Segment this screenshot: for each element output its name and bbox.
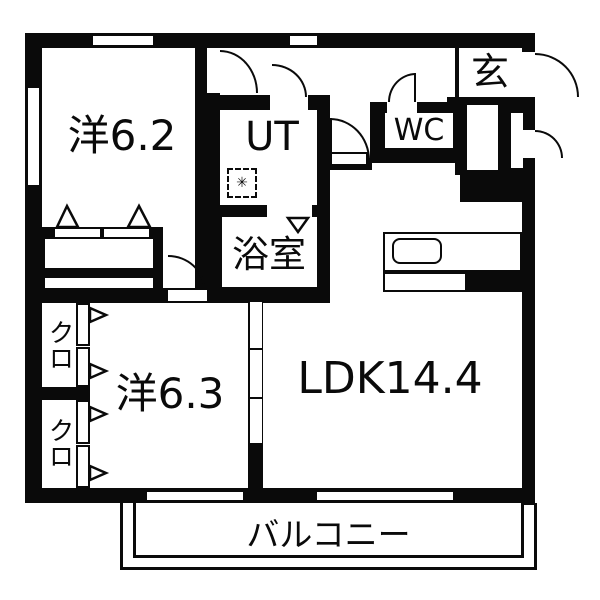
kuro1-panel-top [76, 303, 90, 346]
window-top-2 [290, 36, 317, 45]
closet-shelf-upper [45, 239, 153, 268]
western2-slide-slot-1 [250, 302, 262, 348]
wall-right-mid-a [455, 104, 467, 175]
storage-door-arc [535, 130, 563, 158]
washing-machine-icon: ✳ [227, 168, 257, 198]
ut-door-arc [272, 64, 307, 97]
room-label-bath: 浴室 [221, 236, 317, 275]
ldk-nook [467, 105, 498, 170]
wc-door-gap [387, 102, 417, 113]
closet-panel-left [53, 227, 102, 239]
wall-bottom [25, 488, 535, 503]
room-label-western1: 洋6.2 [60, 114, 184, 158]
western2-slide-slot-3 [250, 399, 262, 443]
wall-right-mid-c [498, 104, 535, 113]
wall-closet-divider [42, 387, 90, 400]
window-left [28, 88, 39, 185]
floorplan: ✳ 洋6.2 UT WC 玄 浴室 洋6.3 LDK14.4 クロ クロ バルコ… [0, 0, 600, 600]
room-label-closet2: クロ [46, 410, 72, 476]
western2-slide-slot-2 [250, 350, 262, 397]
storage-door-leaf [523, 130, 535, 158]
window-bottom-western2 [147, 492, 243, 500]
closet-panel-right [102, 227, 151, 239]
genkan-door-leaf [522, 52, 535, 97]
wc-door-arc [388, 73, 416, 102]
bath-door-gap [267, 205, 312, 217]
closet-fold-triangle-1 [57, 206, 78, 227]
kuro2-panel-bottom [76, 445, 90, 488]
kuro1-fold-triangle-1 [90, 308, 106, 322]
storage-slot [511, 113, 523, 168]
room-label-wc: WC [388, 115, 450, 147]
kitchen-lower-black [465, 272, 522, 292]
room-label-western2: 洋6.3 [108, 372, 232, 416]
closet-fold-triangle-2 [128, 206, 150, 227]
closet-shelf-lower [45, 278, 153, 288]
window-bottom-ldk [317, 492, 453, 500]
room-label-ut: UT [240, 116, 304, 158]
ldk-door-arc [330, 118, 370, 160]
room-label-ldk: LDK14.4 [288, 356, 492, 402]
wall-right-mid-d [460, 168, 535, 202]
kuro2-panel-top [76, 400, 90, 444]
room-label-balcony: バルコニー [140, 518, 517, 553]
wall-genkan-left [455, 46, 459, 101]
genkan-door-arc [535, 53, 579, 97]
room-label-genkan: 玄 [469, 53, 511, 93]
western1-door-slot [207, 48, 220, 93]
kitchen-sink [392, 238, 442, 264]
wall-right-mid-b [498, 104, 511, 172]
washing-machine-glyph: ✳ [236, 175, 248, 191]
kuro1-panel-bottom [76, 347, 90, 387]
kuro2-fold-triangle-2 [90, 466, 106, 480]
room-label-closet1: クロ [46, 312, 72, 378]
western1-door-arc [220, 50, 258, 93]
kuro1-fold-triangle-2 [90, 364, 106, 378]
window-top-1 [93, 36, 153, 45]
kuro2-fold-triangle-1 [90, 407, 106, 421]
western1-western2-door-gap [168, 290, 207, 301]
kitchen-lower-counter [383, 272, 467, 292]
ut-door-gap [270, 95, 308, 110]
